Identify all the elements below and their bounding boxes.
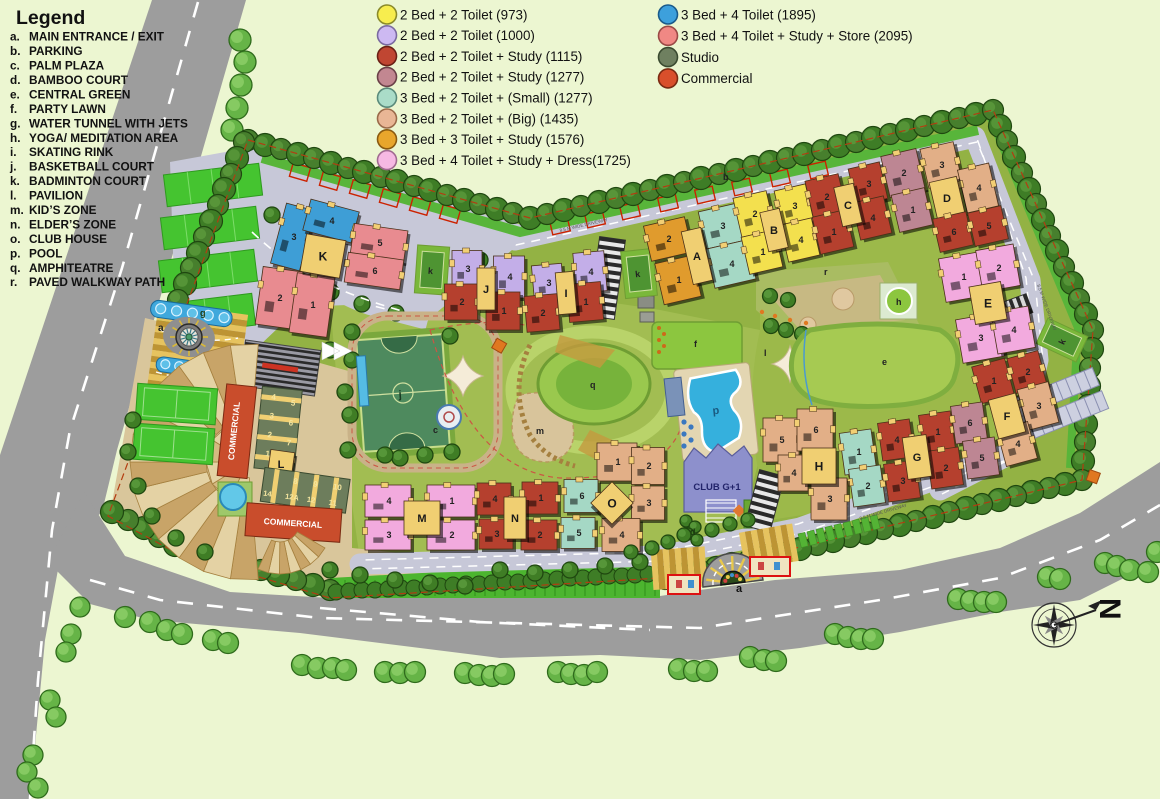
svg-text:M: M xyxy=(417,513,426,525)
svg-text:l: l xyxy=(764,348,767,358)
svg-text:2: 2 xyxy=(752,209,757,219)
svg-text:KID’S ZONE: KID’S ZONE xyxy=(29,203,97,217)
svg-text:3 Bed + 3 Toilet + Study (1576: 3 Bed + 3 Toilet + Study (1576) xyxy=(400,132,584,147)
svg-text:3: 3 xyxy=(291,232,296,242)
svg-text:4: 4 xyxy=(329,216,334,226)
svg-text:2: 2 xyxy=(540,308,545,318)
svg-text:PARKING: PARKING xyxy=(29,44,83,58)
svg-text:6: 6 xyxy=(372,266,377,276)
svg-text:CENTRAL GREEN: CENTRAL GREEN xyxy=(29,87,130,101)
svg-text:3 Bed + 2 Toilet + (Big) (1435: 3 Bed + 2 Toilet + (Big) (1435) xyxy=(400,111,578,126)
svg-text:g: g xyxy=(200,308,206,318)
svg-text:p.: p. xyxy=(10,246,20,260)
svg-text:MAIN ENTRANCE / EXIT: MAIN ENTRANCE / EXIT xyxy=(29,30,165,44)
svg-text:4: 4 xyxy=(507,272,512,282)
svg-text:1: 1 xyxy=(676,275,681,285)
svg-text:1: 1 xyxy=(501,306,506,316)
svg-text:1: 1 xyxy=(856,447,861,457)
svg-text:3 Bed + 4 Toilet (1895): 3 Bed + 4 Toilet (1895) xyxy=(681,7,816,22)
svg-text:6: 6 xyxy=(813,425,818,435)
svg-text:5: 5 xyxy=(986,221,991,231)
svg-text:5: 5 xyxy=(377,238,382,248)
svg-text:6: 6 xyxy=(951,227,956,237)
svg-text:3: 3 xyxy=(978,333,983,343)
svg-text:2: 2 xyxy=(824,192,829,202)
svg-text:2: 2 xyxy=(666,234,671,244)
svg-text:1: 1 xyxy=(935,427,940,437)
svg-text:AMPHITEATRE: AMPHITEATRE xyxy=(29,261,113,275)
svg-text:m: m xyxy=(536,426,544,436)
svg-text:n.: n. xyxy=(10,217,20,231)
svg-text:o.: o. xyxy=(10,232,20,246)
svg-text:N: N xyxy=(511,513,519,525)
svg-text:5: 5 xyxy=(779,435,784,445)
svg-text:1: 1 xyxy=(583,297,588,307)
svg-text:PARTY LAWN: PARTY LAWN xyxy=(29,102,106,116)
svg-text:4: 4 xyxy=(894,435,899,445)
svg-text:Legend: Legend xyxy=(16,7,85,29)
svg-text:5: 5 xyxy=(576,528,581,538)
svg-text:j: j xyxy=(397,389,402,401)
svg-text:2 Bed + 2 Toilet (1000): 2 Bed + 2 Toilet (1000) xyxy=(400,28,535,43)
svg-text:1: 1 xyxy=(449,496,454,506)
svg-text:2: 2 xyxy=(865,481,870,491)
svg-text:4: 4 xyxy=(386,496,391,506)
svg-text:2 Bed + 2 Toilet + Study (1277: 2 Bed + 2 Toilet + Study (1277) xyxy=(400,70,584,85)
svg-text:h.: h. xyxy=(10,131,20,145)
svg-text:k.: k. xyxy=(10,174,20,188)
svg-text:2: 2 xyxy=(277,293,282,303)
svg-text:3: 3 xyxy=(646,498,651,508)
svg-text:2: 2 xyxy=(1025,367,1030,377)
svg-text:1: 1 xyxy=(615,457,620,467)
svg-text:4: 4 xyxy=(976,183,981,193)
svg-text:3: 3 xyxy=(465,264,470,274)
svg-text:r.: r. xyxy=(10,275,17,289)
svg-text:O: O xyxy=(607,496,616,510)
svg-text:q.: q. xyxy=(10,261,20,275)
svg-text:1: 1 xyxy=(961,272,966,282)
svg-text:10: 10 xyxy=(332,482,343,492)
svg-text:N: N xyxy=(1093,598,1126,620)
svg-text:3: 3 xyxy=(792,201,797,211)
svg-text:4: 4 xyxy=(1011,325,1016,335)
svg-text:BAMBOO COURT: BAMBOO COURT xyxy=(29,73,129,87)
svg-text:YOGA/ MEDITATION AREA: YOGA/ MEDITATION AREA xyxy=(29,131,179,145)
svg-text:H: H xyxy=(815,459,824,473)
svg-text:WATER TUNNEL WITH JETS: WATER TUNNEL WITH JETS xyxy=(29,116,188,130)
svg-text:F: F xyxy=(1004,411,1011,423)
svg-text:K: K xyxy=(319,249,328,263)
svg-text:Studio: Studio xyxy=(681,50,719,65)
svg-text:j.: j. xyxy=(9,160,17,174)
svg-text:4: 4 xyxy=(870,213,875,223)
svg-text:e.: e. xyxy=(10,87,20,101)
svg-text:PAVILION: PAVILION xyxy=(29,189,83,203)
svg-text:2 Bed + 2 Toilet + Study (1115: 2 Bed + 2 Toilet + Study (1115) xyxy=(400,49,582,64)
svg-text:f.: f. xyxy=(10,102,17,116)
svg-text:CLUB HOUSE: CLUB HOUSE xyxy=(29,232,107,246)
svg-text:PALM PLAZA: PALM PLAZA xyxy=(29,59,105,73)
svg-text:1: 1 xyxy=(991,376,996,386)
svg-text:PAVED WALKWAY PATH: PAVED WALKWAY PATH xyxy=(29,275,165,289)
svg-text:c.: c. xyxy=(10,59,20,73)
svg-text:m.: m. xyxy=(10,203,24,217)
svg-text:h: h xyxy=(896,297,902,307)
svg-text:A: A xyxy=(693,251,701,263)
svg-text:5: 5 xyxy=(979,453,984,463)
svg-text:G: G xyxy=(913,452,922,464)
svg-text:1: 1 xyxy=(760,247,765,257)
svg-text:i.: i. xyxy=(10,145,17,159)
svg-text:q: q xyxy=(590,380,596,390)
svg-text:SKATING RINK: SKATING RINK xyxy=(29,145,114,159)
svg-text:1: 1 xyxy=(310,300,315,310)
svg-text:l.: l. xyxy=(10,189,17,203)
svg-text:6: 6 xyxy=(579,491,584,501)
svg-text:g.: g. xyxy=(10,116,20,130)
svg-text:4: 4 xyxy=(492,494,497,504)
svg-text:BADMINTON COURT: BADMINTON COURT xyxy=(29,174,147,188)
svg-text:2: 2 xyxy=(459,297,464,307)
svg-text:J: J xyxy=(483,284,489,296)
svg-text:3: 3 xyxy=(546,278,551,288)
svg-text:2: 2 xyxy=(901,168,906,178)
svg-text:4: 4 xyxy=(1015,439,1020,449)
svg-text:11: 11 xyxy=(328,498,337,508)
svg-text:CLUB G+1: CLUB G+1 xyxy=(693,482,741,493)
svg-text:6: 6 xyxy=(967,418,972,428)
svg-text:3: 3 xyxy=(1036,401,1041,411)
svg-text:c: c xyxy=(433,425,438,435)
svg-text:r: r xyxy=(824,267,828,277)
svg-text:3: 3 xyxy=(494,529,499,539)
svg-text:E: E xyxy=(984,296,992,310)
svg-text:a: a xyxy=(158,323,164,334)
svg-text:3: 3 xyxy=(900,476,905,486)
svg-text:Commercial: Commercial xyxy=(681,71,752,86)
svg-text:1: 1 xyxy=(538,493,543,503)
svg-text:1: 1 xyxy=(831,227,836,237)
svg-text:12: 12 xyxy=(306,495,316,505)
svg-text:4: 4 xyxy=(588,267,593,277)
svg-text:BASKETBALL COURT: BASKETBALL COURT xyxy=(29,160,155,174)
svg-text:3 Bed + 4 Toilet + Study + Sto: 3 Bed + 4 Toilet + Study + Store (2095) xyxy=(681,29,913,44)
svg-text:ELDER’S ZONE: ELDER’S ZONE xyxy=(29,217,116,231)
svg-text:2: 2 xyxy=(449,530,454,540)
svg-text:d.: d. xyxy=(10,73,20,87)
svg-text:4: 4 xyxy=(729,259,734,269)
svg-text:2 Bed + 2 Toilet (973): 2 Bed + 2 Toilet (973) xyxy=(400,7,527,22)
svg-text:2: 2 xyxy=(996,263,1001,273)
svg-text:3: 3 xyxy=(720,221,725,231)
svg-text:1: 1 xyxy=(910,205,915,215)
svg-text:3 Bed + 4 Toilet + Study + Dre: 3 Bed + 4 Toilet + Study + Dress(1725) xyxy=(400,153,631,168)
svg-text:b: b xyxy=(723,172,729,182)
svg-text:3: 3 xyxy=(866,179,871,189)
svg-text:b.: b. xyxy=(10,44,20,58)
svg-text:3: 3 xyxy=(827,494,832,504)
svg-text:3: 3 xyxy=(939,160,944,170)
svg-text:e: e xyxy=(882,357,887,367)
svg-text:D: D xyxy=(943,193,951,205)
svg-text:3: 3 xyxy=(386,530,391,540)
svg-text:4: 4 xyxy=(619,530,624,540)
svg-text:3 Bed + 2 Toilet + (Small) (12: 3 Bed + 2 Toilet + (Small) (1277) xyxy=(400,91,593,106)
svg-text:a.: a. xyxy=(10,30,20,44)
svg-text:C: C xyxy=(844,200,852,212)
svg-text:4: 4 xyxy=(798,235,803,245)
svg-text:2: 2 xyxy=(537,530,542,540)
svg-text:a: a xyxy=(736,583,743,595)
svg-text:POOL: POOL xyxy=(29,246,62,260)
svg-text:2: 2 xyxy=(646,461,651,471)
svg-text:2: 2 xyxy=(943,463,948,473)
svg-text:I: I xyxy=(564,288,567,300)
svg-text:B: B xyxy=(770,225,778,237)
svg-text:4: 4 xyxy=(791,468,796,478)
